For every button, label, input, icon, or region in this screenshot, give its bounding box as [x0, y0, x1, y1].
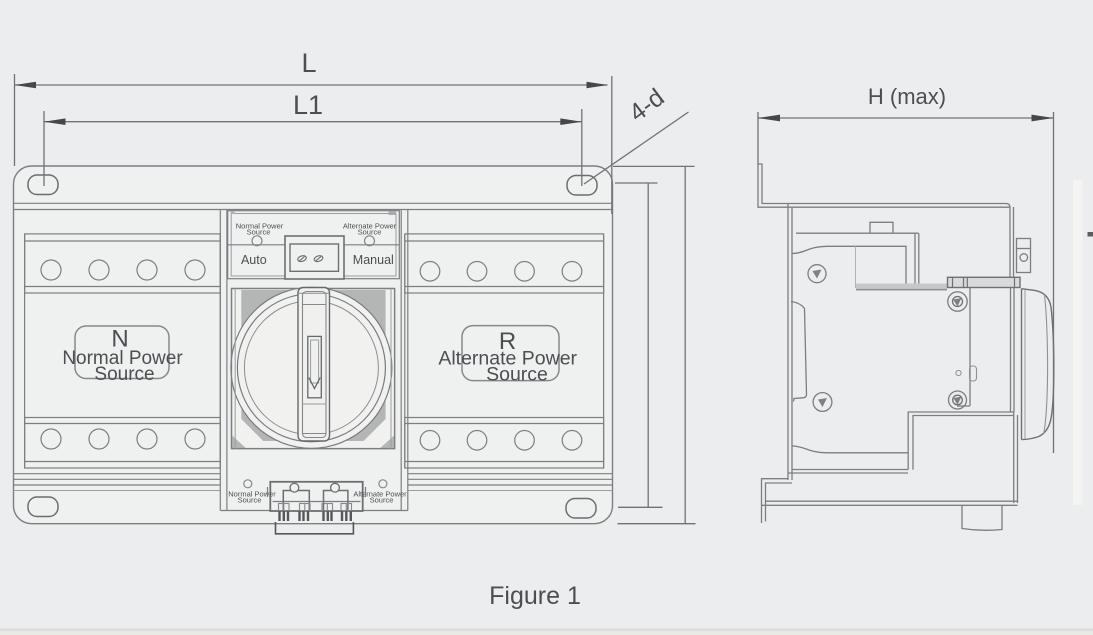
svg-text:Source: Source [370, 496, 394, 505]
svg-text:Auto: Auto [241, 253, 267, 267]
svg-text:Manual: Manual [353, 253, 394, 267]
svg-text:Source: Source [94, 364, 154, 385]
svg-text:H (max): H (max) [868, 84, 946, 109]
svg-text:Source: Source [358, 228, 382, 237]
svg-text:Figure 1: Figure 1 [489, 582, 581, 610]
svg-text:L: L [301, 48, 316, 78]
svg-text:Source: Source [247, 228, 271, 237]
svg-text:Source: Source [238, 496, 262, 505]
svg-text:L1: L1 [293, 90, 323, 120]
svg-text:Source: Source [486, 364, 548, 386]
